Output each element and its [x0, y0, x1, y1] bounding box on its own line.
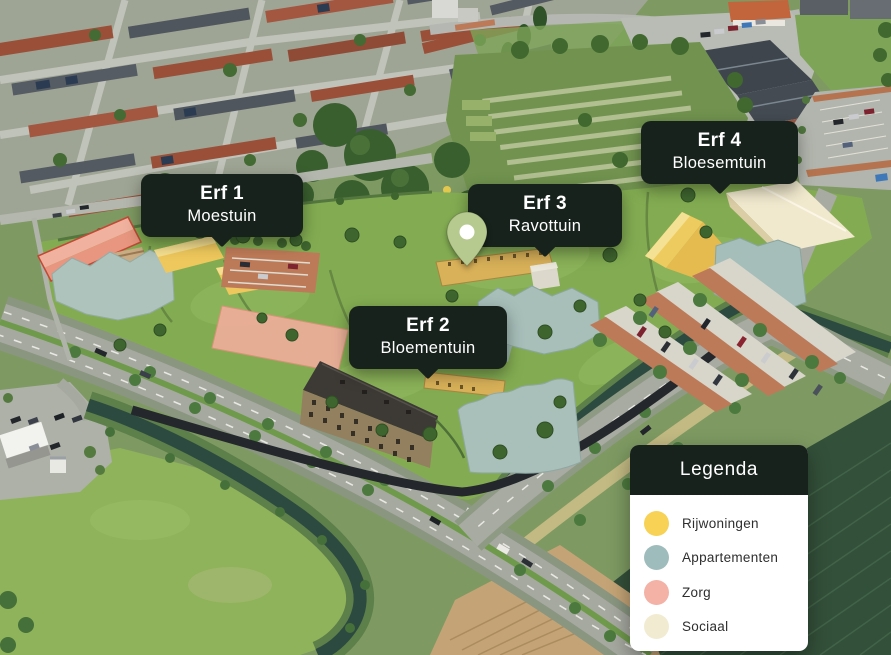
marker-erf-3-title: Erf 3 — [474, 193, 616, 215]
marker-erf-4-title: Erf 4 — [647, 130, 792, 152]
swatch-sociaal — [644, 614, 669, 639]
legend-body: Rijwoningen Appartementen Zorg Sociaal — [630, 495, 808, 644]
legend-label-sociaal: Sociaal — [682, 619, 728, 634]
swatch-zorg — [644, 580, 669, 605]
marker-erf-1[interactable]: Erf 1 Moestuin — [141, 174, 303, 237]
legend-item-appartementen: Appartementen — [644, 541, 808, 576]
pin-center-dot — [460, 225, 475, 240]
legend-item-sociaal: Sociaal — [644, 610, 808, 645]
location-pin-icon[interactable] — [445, 210, 489, 268]
swatch-rijwoningen — [644, 511, 669, 536]
marker-erf-3[interactable]: Erf 3 Ravottuin — [468, 184, 622, 247]
marker-erf-2-subtitle: Bloementuin — [355, 339, 501, 359]
legend-panel: Legenda Rijwoningen Appartementen Zorg S… — [630, 445, 808, 651]
marker-erf-3-subtitle: Ravottuin — [474, 217, 616, 237]
legend-item-rijwoningen: Rijwoningen — [644, 506, 808, 541]
legend-label-rijwoningen: Rijwoningen — [682, 516, 759, 531]
aerial-site-plan: Erf 1 Moestuin Erf 2 Bloementuin Erf 3 R… — [0, 0, 891, 655]
marker-erf-4-subtitle: Bloesemtuin — [647, 154, 792, 174]
marker-erf-2[interactable]: Erf 2 Bloementuin — [349, 306, 507, 369]
legend-item-zorg: Zorg — [644, 575, 808, 610]
legend-label-zorg: Zorg — [682, 585, 711, 600]
swatch-appartementen — [644, 545, 669, 570]
legend-title: Legenda — [630, 445, 808, 495]
marker-erf-2-title: Erf 2 — [355, 315, 501, 337]
marker-erf-4[interactable]: Erf 4 Bloesemtuin — [641, 121, 798, 184]
legend-label-appartementen: Appartementen — [682, 550, 778, 565]
marker-erf-1-title: Erf 1 — [147, 183, 297, 205]
marker-erf-1-subtitle: Moestuin — [147, 207, 297, 227]
